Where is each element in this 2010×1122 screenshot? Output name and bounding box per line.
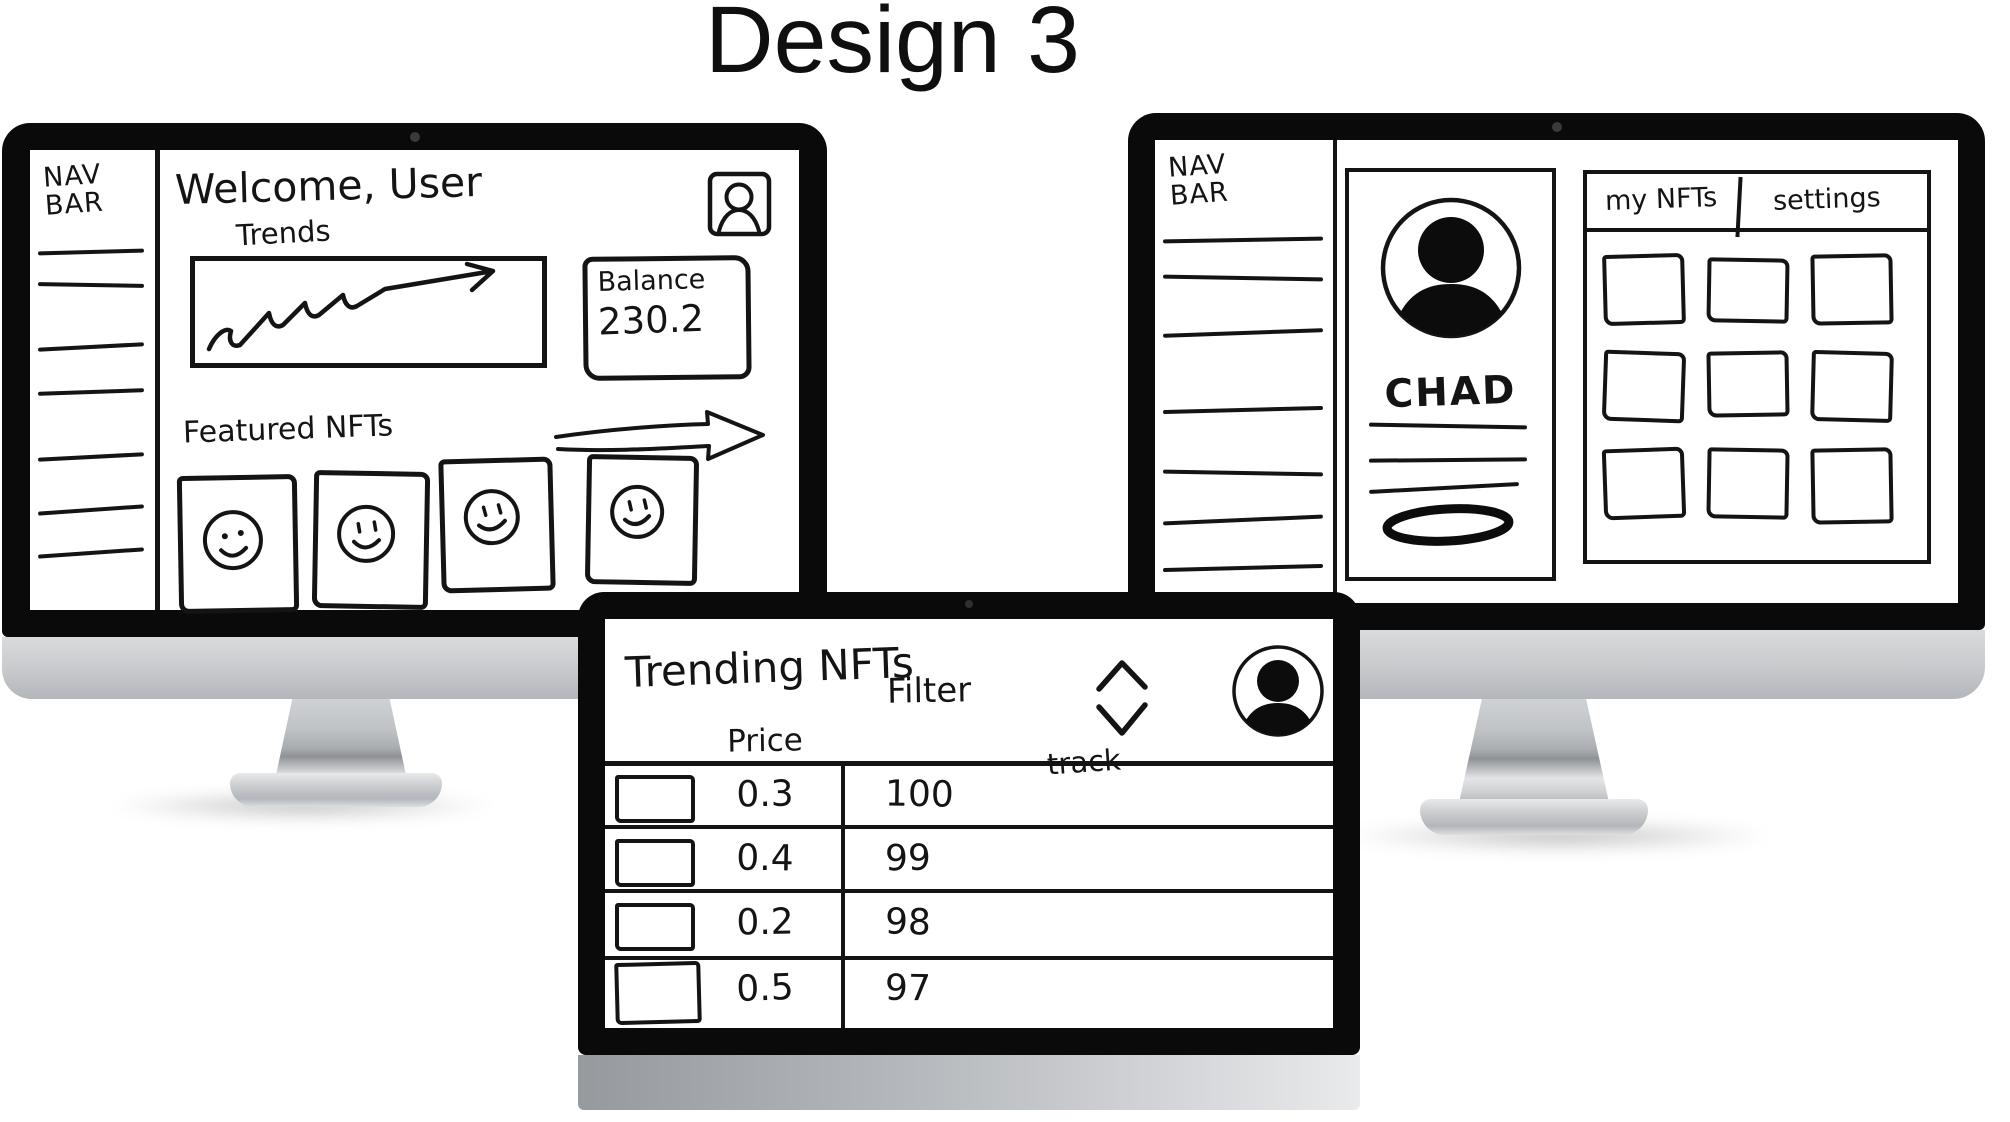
- navbar-label: NAV BAR: [42, 159, 126, 220]
- nav-item-placeholder[interactable]: [1163, 470, 1323, 477]
- rank-cell: 99: [885, 838, 932, 880]
- nft-grid-item[interactable]: [1706, 350, 1789, 417]
- nft-thumbnail: [614, 961, 702, 1025]
- nav-item-placeholder[interactable]: [38, 342, 144, 352]
- nft-thumbnail: [615, 903, 695, 951]
- nav-item-placeholder[interactable]: [1163, 406, 1323, 414]
- table-row-divider: [605, 825, 1333, 829]
- bio-line-placeholder: [1369, 457, 1527, 462]
- price-cell: 0.2: [705, 901, 826, 944]
- nav-item-placeholder[interactable]: [1163, 564, 1323, 572]
- price-cell: 0.3: [705, 773, 826, 816]
- nft-thumbnail: [615, 775, 695, 823]
- nft-grid-item[interactable]: [1810, 253, 1893, 325]
- trending-heading: Trending NFTs: [624, 638, 914, 697]
- username: CHAD: [1348, 366, 1552, 418]
- trending-screen: Trending NFTs Price Filter track: [605, 619, 1333, 1028]
- balance-value: 230.2: [597, 295, 746, 343]
- camera-dot: [410, 132, 420, 142]
- balance-card: Balance 230.2: [582, 255, 751, 381]
- nav-item-placeholder[interactable]: [38, 282, 144, 288]
- nft-grid: [1587, 232, 1927, 560]
- nft-card[interactable]: [438, 457, 555, 594]
- nft-tabs-panel: my NFTs settings: [1583, 170, 1931, 564]
- tab-my-nfts[interactable]: my NFTs: [1604, 182, 1717, 217]
- monitor-chin: [578, 1055, 1360, 1110]
- nav-item-placeholder[interactable]: [38, 249, 144, 256]
- featured-nfts-label: Featured NFTs: [182, 408, 393, 450]
- tab-settings[interactable]: settings: [1772, 182, 1881, 217]
- bio-line-placeholder: [1369, 482, 1519, 494]
- price-column-header: Price: [710, 722, 821, 760]
- table-row-divider: [605, 889, 1333, 893]
- monitor-stand-base: [1420, 799, 1648, 835]
- profile-card: CHAD: [1345, 168, 1556, 581]
- nav-item-placeholder[interactable]: [38, 504, 144, 515]
- nft-card[interactable]: [585, 454, 699, 586]
- nft-grid-item[interactable]: [1602, 350, 1686, 424]
- trending-monitor: Trending NFTs Price Filter track: [578, 592, 1360, 1117]
- nft-grid-item[interactable]: [1602, 253, 1686, 326]
- nft-grid-item[interactable]: [1810, 447, 1893, 524]
- filter-control[interactable]: Filter: [887, 670, 972, 711]
- monitor-bezel: NAV BAR: [1128, 113, 1985, 630]
- balance-label: Balance: [597, 263, 746, 298]
- trend-line-up-icon: [195, 261, 542, 363]
- rank-cell: 100: [885, 773, 954, 815]
- rank-cell: 97: [885, 968, 932, 1010]
- tab-divider: [1735, 177, 1742, 237]
- trending-row[interactable]: 0.4 99: [605, 830, 1333, 889]
- nft-grid-item[interactable]: [1810, 350, 1894, 423]
- tab-bar: my NFTs settings: [1587, 174, 1927, 232]
- rank-cell: 98: [884, 901, 931, 943]
- nav-item-placeholder[interactable]: [38, 547, 144, 558]
- design-title: Design 3: [705, 0, 1080, 95]
- nft-grid-item[interactable]: [1706, 257, 1789, 323]
- profile-action-button[interactable]: [1375, 498, 1525, 552]
- nav-item-placeholder[interactable]: [1163, 237, 1323, 244]
- nft-card[interactable]: [177, 474, 299, 614]
- monitor-bezel: Trending NFTs Price Filter track: [578, 592, 1360, 1055]
- navbar-label: NAV BAR: [1167, 149, 1251, 210]
- price-cell: 0.5: [704, 966, 825, 1011]
- dashboard-screen: NAV BAR Welcome, User Trends: [30, 150, 799, 610]
- monitor-bezel: NAV BAR Welcome, User Trends: [2, 123, 827, 637]
- design-board: Design 3 NAV BAR Welcome, User: [0, 0, 2010, 1122]
- trends-label: Trends: [235, 214, 331, 253]
- sidebar-nav: NAV BAR: [30, 150, 160, 610]
- smiley-face-icon: [590, 459, 684, 571]
- smiley-face-icon: [443, 462, 540, 578]
- sort-chevrons-icon[interactable]: [1092, 655, 1152, 747]
- nft-thumbnail: [615, 839, 695, 887]
- camera-dot: [1552, 122, 1562, 132]
- trending-row[interactable]: 0.2 98: [605, 894, 1333, 956]
- nav-item-placeholder[interactable]: [1163, 515, 1323, 526]
- nft-grid-item[interactable]: [1602, 447, 1686, 521]
- nav-item-placeholder[interactable]: [1163, 275, 1323, 282]
- trends-chart: [190, 256, 547, 368]
- sidebar-nav: NAV BAR: [1155, 140, 1337, 603]
- camera-dot: [965, 600, 973, 608]
- trending-row[interactable]: 0.3 100: [605, 766, 1333, 825]
- smiley-face-icon: [182, 479, 284, 599]
- nav-item-placeholder[interactable]: [38, 388, 144, 396]
- nav-item-placeholder[interactable]: [1163, 328, 1323, 338]
- profile-screen: NAV BAR: [1155, 140, 1958, 603]
- bio-line-placeholder: [1369, 423, 1527, 430]
- nav-item-placeholder[interactable]: [38, 452, 144, 462]
- price-cell: 0.4: [705, 837, 826, 880]
- trending-row[interactable]: 0.5 97: [605, 960, 1333, 1028]
- monitor-stand-neck: [1458, 697, 1610, 807]
- profile-avatar-icon[interactable]: [1366, 186, 1536, 354]
- nft-grid-item[interactable]: [1706, 447, 1789, 519]
- welcome-heading: Welcome, User: [174, 158, 482, 214]
- user-avatar-icon[interactable]: [706, 170, 772, 238]
- user-avatar-icon[interactable]: [1228, 639, 1328, 743]
- nft-card[interactable]: [312, 470, 430, 610]
- smiley-face-icon: [317, 475, 415, 595]
- monitor-stand-base: [230, 773, 442, 807]
